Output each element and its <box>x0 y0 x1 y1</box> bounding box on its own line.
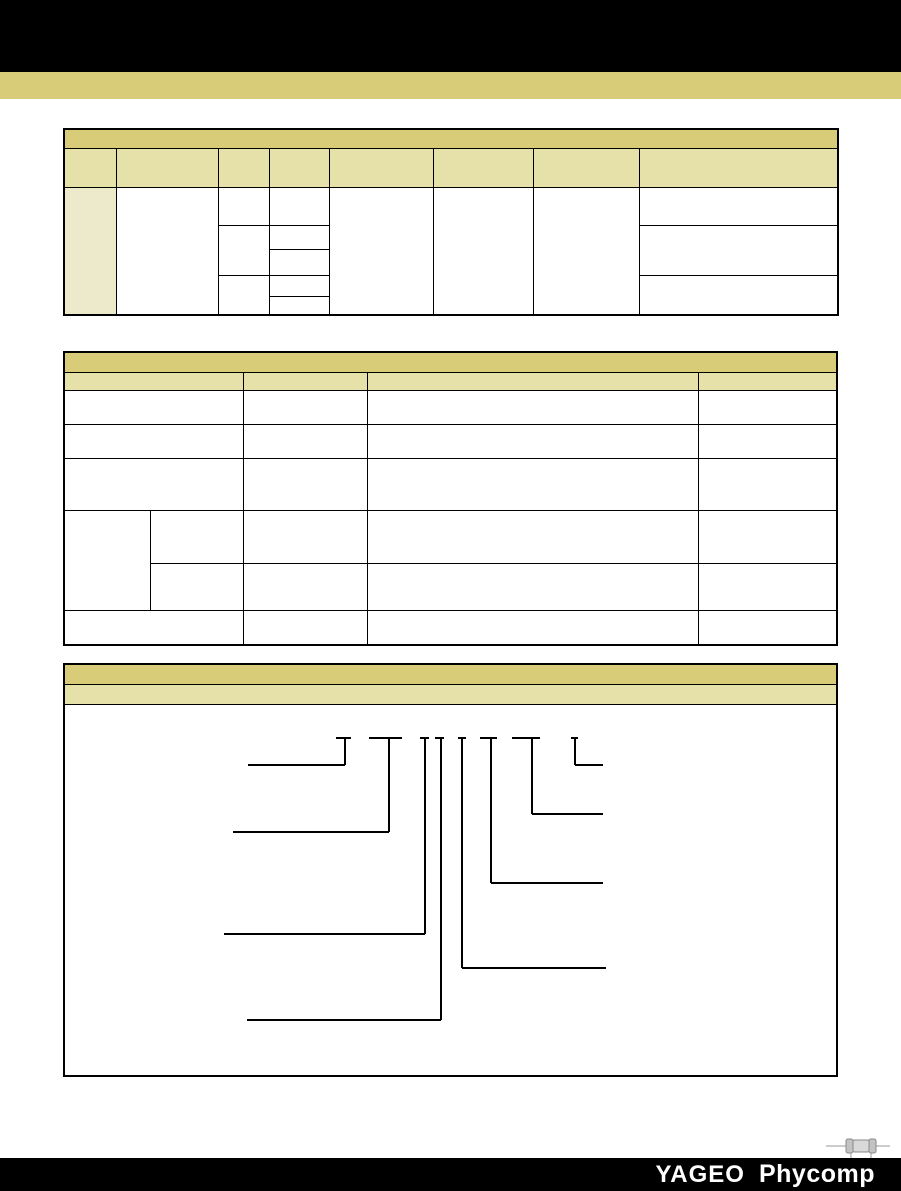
table2-cell <box>64 458 243 510</box>
table1-header-cell <box>533 148 639 187</box>
table1-header-cell <box>64 148 116 187</box>
table1-cell <box>218 187 269 225</box>
table1-cell <box>433 187 533 315</box>
table2-cell <box>698 563 837 610</box>
spec-table-2 <box>63 351 838 646</box>
table2-cell <box>367 390 698 424</box>
footer-band: YAGEO Phycomp <box>0 1158 901 1191</box>
table1-header-cell <box>269 148 329 187</box>
table2-cell <box>698 610 837 645</box>
table2-header-cell <box>367 372 698 390</box>
phycomp-logo: Phycomp <box>759 1160 875 1189</box>
ordering-code-diagram <box>63 705 838 1075</box>
table1-cell <box>269 187 329 225</box>
table1-title-bar <box>64 129 838 148</box>
table2-cell <box>64 610 243 645</box>
table2-cell <box>698 424 837 458</box>
table1-cell <box>64 187 116 315</box>
table1-cell <box>639 187 838 225</box>
table2-cell <box>150 563 243 610</box>
table2-cell <box>367 510 698 563</box>
table1-cell <box>269 296 329 315</box>
table2-cell <box>64 510 150 610</box>
table2-cell <box>243 610 367 645</box>
table2-cell <box>698 510 837 563</box>
table2-cell <box>243 390 367 424</box>
table2-header-cell <box>64 372 243 390</box>
khaki-accent-band <box>0 72 901 99</box>
datasheet-page: YAGEO Phycomp <box>0 0 901 1191</box>
table2-cell <box>698 458 837 510</box>
table2-cell <box>367 610 698 645</box>
table1-cell <box>218 225 269 275</box>
table1-cell <box>639 225 838 275</box>
table1-header-cell <box>116 148 218 187</box>
table2-cell <box>243 424 367 458</box>
table1-header-cell <box>218 148 269 187</box>
table1-header-cell <box>639 148 838 187</box>
yageo-logo: YAGEO <box>655 1161 744 1189</box>
table1-cell <box>533 187 639 315</box>
table1-header-cell <box>433 148 533 187</box>
table2-header-cell <box>243 372 367 390</box>
resistor-icon <box>826 1137 890 1158</box>
ordering-title-bar <box>65 665 836 685</box>
table1-header-cell <box>329 148 433 187</box>
table1-cell <box>639 275 838 315</box>
table2-cell <box>243 563 367 610</box>
top-black-band <box>0 0 901 72</box>
table1-cell <box>218 275 269 315</box>
table2-cell <box>243 510 367 563</box>
table2-cell <box>367 424 698 458</box>
table2-cell <box>64 390 243 424</box>
table2-cell <box>150 510 243 563</box>
ordering-subtitle-bar <box>65 685 836 705</box>
table2-title-bar <box>64 352 837 372</box>
table1-cell <box>269 225 329 249</box>
table2-cell <box>243 458 367 510</box>
table1-cell <box>329 187 433 315</box>
table1-cell <box>269 275 329 296</box>
table2-cell <box>367 563 698 610</box>
table1-cell <box>269 249 329 275</box>
table2-header-cell <box>698 372 837 390</box>
table1-cell <box>116 187 218 315</box>
table2-cell <box>698 390 837 424</box>
table2-cell <box>367 458 698 510</box>
spec-table-1 <box>63 128 839 316</box>
table2-cell <box>64 424 243 458</box>
